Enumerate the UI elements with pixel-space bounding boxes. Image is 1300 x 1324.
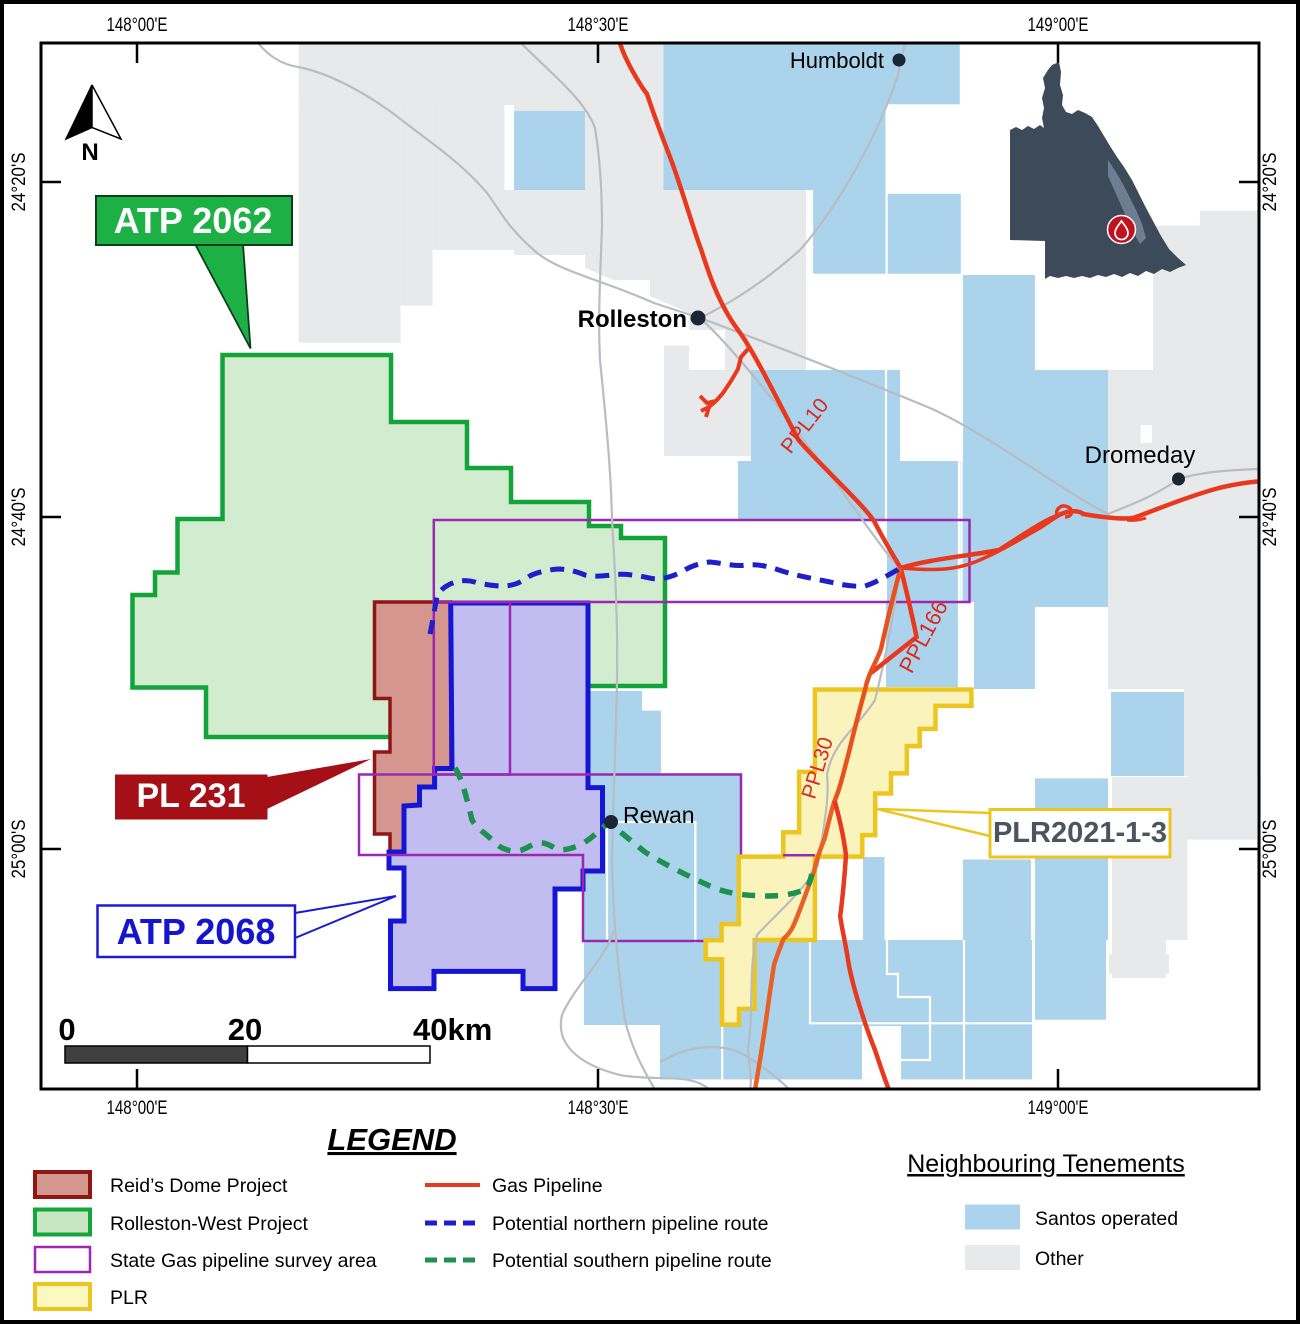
- svg-text:148°00'E: 148°00'E: [107, 1098, 168, 1119]
- svg-text:149°00'E: 149°00'E: [1028, 1098, 1089, 1119]
- svg-text:Reid’s Dome Project: Reid’s Dome Project: [110, 1175, 288, 1197]
- svg-text:ATP 2062: ATP 2062: [114, 200, 273, 241]
- svg-text:Dromeday: Dromeday: [1085, 442, 1196, 469]
- svg-text:148°30'E: 148°30'E: [568, 15, 629, 36]
- svg-text:PL 231: PL 231: [136, 777, 245, 815]
- svg-text:ATP 2068: ATP 2068: [117, 911, 276, 952]
- svg-text:Other: Other: [1035, 1248, 1084, 1270]
- svg-text:25°00'S: 25°00'S: [1260, 820, 1281, 879]
- svg-text:20: 20: [228, 1012, 262, 1047]
- svg-text:149°00'E: 149°00'E: [1028, 15, 1089, 36]
- svg-text:24°40'S: 24°40'S: [9, 488, 30, 547]
- svg-text:LEGEND: LEGEND: [327, 1122, 456, 1157]
- svg-text:N: N: [81, 139, 98, 166]
- svg-text:148°00'E: 148°00'E: [107, 15, 168, 36]
- svg-text:Neighbouring Tenements: Neighbouring Tenements: [907, 1150, 1185, 1178]
- svg-text:Rolleston: Rolleston: [578, 306, 687, 333]
- svg-text:PLR: PLR: [110, 1287, 148, 1309]
- svg-text:24°40'S: 24°40'S: [1260, 488, 1281, 547]
- svg-text:Rewan: Rewan: [623, 802, 695, 828]
- svg-text:Potential southern pipeline ro: Potential southern pipeline route: [492, 1250, 772, 1272]
- svg-text:Humboldt: Humboldt: [790, 48, 884, 73]
- svg-text:Rolleston-West Project: Rolleston-West Project: [110, 1213, 309, 1235]
- svg-text:24°20'S: 24°20'S: [1260, 153, 1281, 212]
- svg-text:Gas Pipeline: Gas Pipeline: [492, 1175, 603, 1197]
- svg-text:24°20'S: 24°20'S: [9, 153, 30, 212]
- svg-text:PLR2021-1-3: PLR2021-1-3: [993, 817, 1167, 849]
- svg-text:Potential northern pipeline ro: Potential northern pipeline route: [492, 1213, 768, 1235]
- svg-text:Santos operated: Santos operated: [1035, 1208, 1178, 1230]
- svg-text:State Gas pipeline survey area: State Gas pipeline survey area: [110, 1250, 377, 1272]
- svg-text:40km: 40km: [413, 1012, 492, 1047]
- svg-text:148°30'E: 148°30'E: [568, 1098, 629, 1119]
- svg-text:25°00'S: 25°00'S: [9, 820, 30, 879]
- svg-text:0: 0: [58, 1012, 75, 1047]
